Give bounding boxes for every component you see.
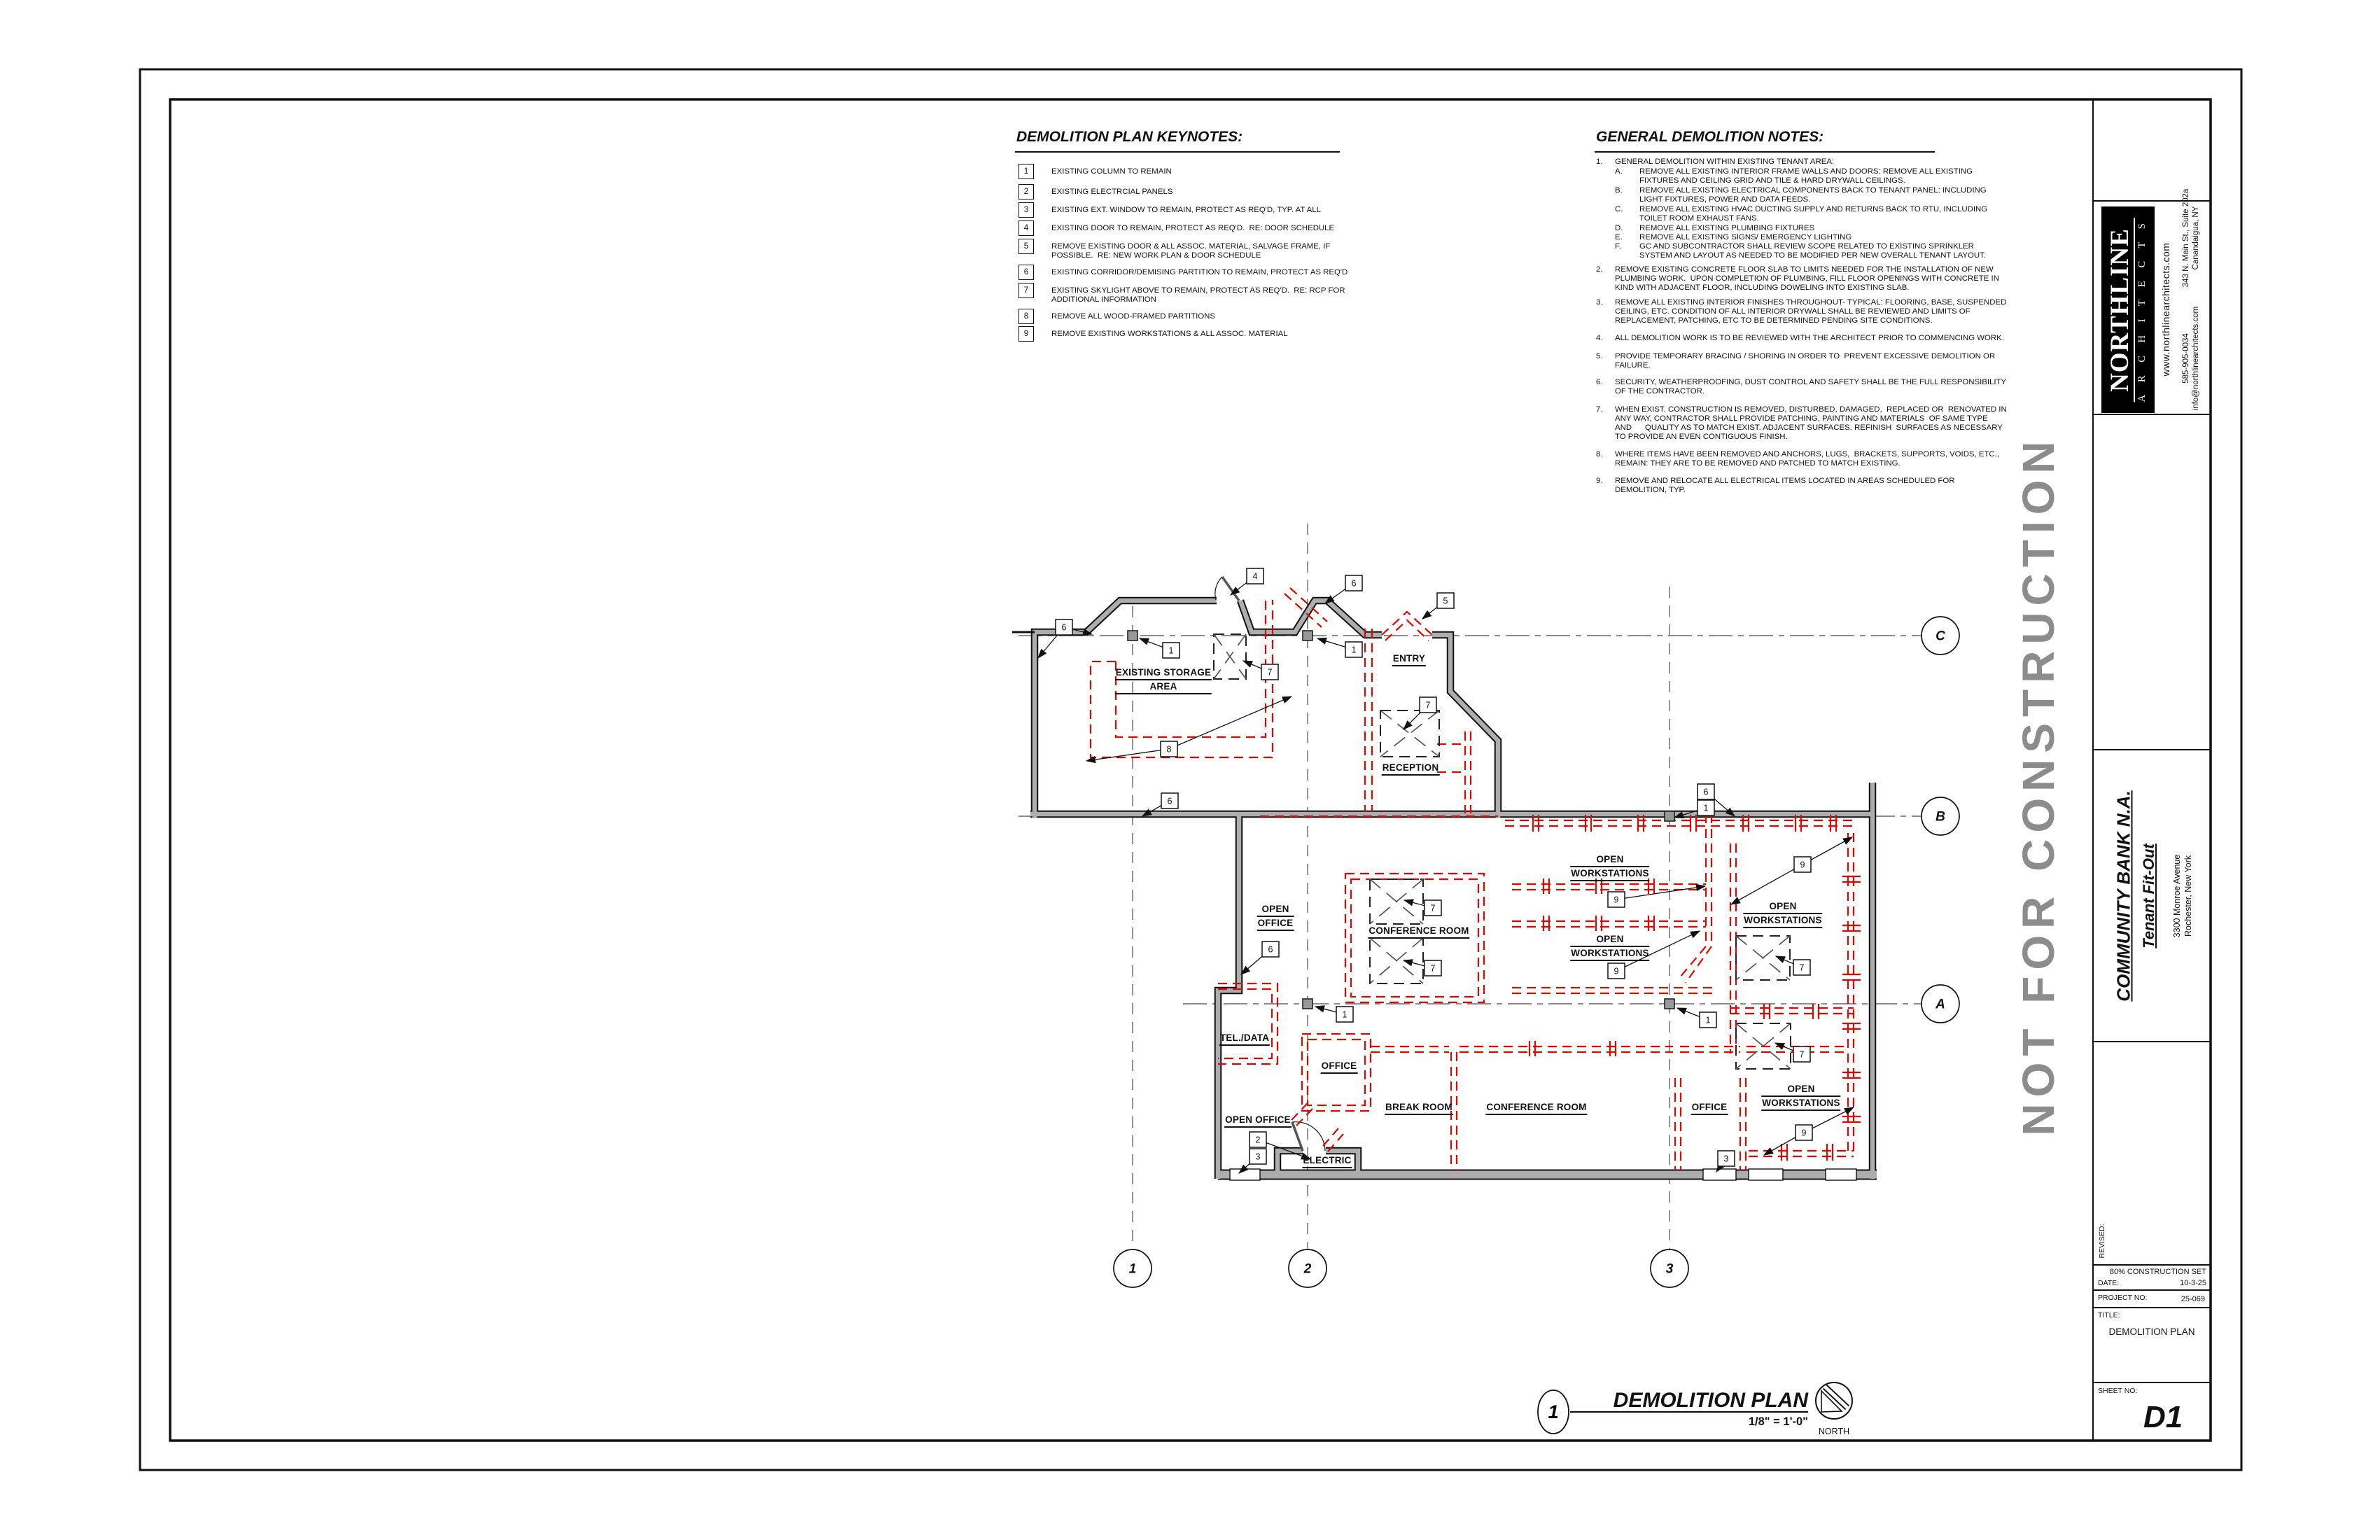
general-note-line: GENERAL DEMOLITION WITHIN EXISTING TENAN… (1615, 157, 1834, 166)
general-note-line: 5. (1596, 352, 1603, 360)
general-note-line: FAILURE. (1615, 361, 1651, 370)
keynotes-header: DEMOLITION PLAN KEYNOTES: (1016, 129, 1242, 146)
room-label-text: ENTRY (1392, 652, 1426, 666)
north-label: NORTH (1819, 1427, 1849, 1436)
keynote-number: 8 (1018, 309, 1034, 324)
general-note-line: 7. (1596, 405, 1603, 414)
keynote-number: 3 (1018, 202, 1034, 218)
room-label-text: CONFERENCE ROOM (1485, 1101, 1587, 1115)
general-note-line: REMOVE ALL EXISTING ELECTRICAL COMPONENT… (1639, 186, 1987, 195)
room-label-text: WORKSTATIONS (1743, 914, 1822, 928)
sheet-no-label: SHEET NO: (2098, 1387, 2137, 1395)
project-address-line1: 3300 Monroe Avenue (2171, 855, 2183, 938)
sheet-title: DEMOLITION PLAN (2096, 1326, 2208, 1337)
room-label-text: WORKSTATIONS (1570, 867, 1649, 881)
keynote-tag-number: 6 (1062, 623, 1067, 633)
general-note-line: REPLACEMENT, PATCHING, ETC TO BE DETERMI… (1615, 316, 1933, 325)
general-note-line: REMAIN: THEY ARE TO BE REMOVED AND PATCH… (1615, 459, 1900, 468)
grid-bubble-label: A (1935, 997, 1945, 1012)
keynote-number: 1 (1018, 164, 1034, 179)
room-label-text: TEL./DATA (1219, 1032, 1270, 1046)
room-label: OPEN OFFICE (1224, 1114, 1291, 1128)
general-note-line: REMOVE ALL EXISTING SIGNS/ EMERGENCY LIG… (1639, 233, 1851, 241)
firm-address: 343 N. Main St., Suite 202a Canandaigua,… (2181, 189, 2201, 288)
general-note-line: GC AND SUBCONTRACTOR SHALL REVIEW SCOPE … (1639, 242, 1974, 251)
keynote-tag-number: 9 (1614, 967, 1619, 976)
keynote-tag-number: 6 (1704, 787, 1709, 797)
drawing-sheet: 1 61746157866161779997712339CBA123 DEMOL… (0, 0, 2380, 1540)
firm-name: NORTHLINE (2107, 218, 2135, 402)
room-label: BREAK ROOM (1385, 1101, 1453, 1115)
keynote-text: EXISTING COLUMN TO REMAIN (1051, 167, 1172, 176)
keynote-tag-number: 9 (1802, 1128, 1807, 1138)
north-arrow-icon (1816, 1382, 1852, 1419)
general-note-line: KIND WITH ADJACENT FLOOR, INCLUDING DOWE… (1615, 283, 1909, 292)
keynote-tag-number: 7 (1426, 701, 1431, 710)
general-note-line: REMOVE ALL EXISTING PLUMBING FIXTURES (1639, 224, 1814, 232)
keynote-tag-number: 7 (1431, 964, 1436, 974)
keynote-tag-number: 4 (1253, 572, 1258, 582)
drawing-title: DEMOLITION PLAN (1568, 1389, 1808, 1413)
room-label: OPENWORKSTATIONS (1743, 900, 1822, 928)
keynotes-rule (1015, 151, 1340, 153)
keynote-tag-number: 1 (1343, 1010, 1347, 1020)
grid-bubble-label: B (1935, 810, 1945, 825)
keynote-tag-number: 1 (1706, 1016, 1711, 1025)
general-note-line: PLUMBING WORK. UPON COMPLETION OF PLUMBI… (1615, 274, 1999, 283)
room-label-text: OFFICE (1321, 1060, 1358, 1074)
general-note-line: LIGHT FIXTURES, POWER AND DATA FEEDS. (1639, 195, 1810, 204)
keynote-number: 7 (1018, 283, 1034, 298)
room-label: ENTRY (1392, 652, 1426, 666)
firm-subtitle: A R C H I T E C T S (2135, 218, 2149, 402)
room-label: OPENOFFICE (1257, 903, 1294, 931)
room-label-text: ELECTRIC (1302, 1154, 1352, 1168)
general-note-line: D. (1615, 224, 1623, 232)
room-label-text: OPEN (1570, 933, 1649, 947)
general-note-line: TOILET ROOM EXHAUST FANS. (1639, 214, 1759, 223)
general-note-line: 1. (1596, 157, 1603, 166)
room-label: CONFERENCE ROOM (1485, 1101, 1587, 1115)
room-label-text: RECEPTION (1382, 762, 1440, 776)
room-label: EXISTING STORAGEAREA (1115, 666, 1212, 694)
keynote-leader (1731, 864, 1802, 904)
firm-contact: 585-905-0034 info@northlinearchitects.co… (2181, 307, 2201, 410)
firm-phone: 585-905-0034 (2181, 307, 2191, 410)
project-address: 3300 Monroe Avenue Rochester, New York (2171, 855, 2194, 938)
general-note-line: ANY WAY, CONTRACTOR SHALL PROVIDE PATCHI… (1615, 414, 1988, 423)
general-note-line: AND QUALITY AS TO MATCH EXIST. ADJACENT … (1615, 423, 2003, 432)
keynote-text: REMOVE EXISTING WORKSTATIONS & ALL ASSOC… (1051, 330, 1288, 338)
firm-address-line2: Canandaigua, NY (2191, 189, 2201, 288)
keynote-tag-number: 6 (1268, 945, 1273, 955)
firm-logo: NORTHLINE A R C H I T E C T S (2101, 206, 2155, 413)
keynote-tag-number: 6 (1168, 797, 1172, 806)
keynote-text: REMOVE EXISTING DOOR & ALL ASSOC. MATERI… (1051, 242, 1330, 251)
keynote-tag-number: 6 (1352, 579, 1357, 589)
keynote-tag-number: 3 (1724, 1154, 1729, 1164)
general-note-line: 8. (1596, 450, 1603, 458)
keynote-tag-number: 7 (1800, 1050, 1805, 1060)
room-label-text: OPEN OFFICE (1224, 1114, 1291, 1128)
keynote-tag-number: 7 (1800, 963, 1805, 973)
room-label: CONFERENCE ROOM (1368, 925, 1469, 939)
room-label-text: WORKSTATIONS (1761, 1097, 1840, 1111)
general-note-line: TO PROVIDE AN EVEN CONTIGUOUS FINISH. (1615, 433, 1788, 441)
firm-address-line1: 343 N. Main St., Suite 202a (2181, 189, 2191, 288)
general-note-line: WHERE ITEMS HAVE BEEN REMOVED AND ANCHOR… (1615, 450, 1999, 458)
title-label: TITLE: (2098, 1311, 2120, 1319)
grid-bubble-label: 2 (1303, 1262, 1312, 1277)
room-label-text: EXISTING STORAGE (1115, 666, 1212, 680)
room-label: ELECTRIC (1302, 1154, 1352, 1168)
general-note-line: 6. (1596, 378, 1603, 386)
room-label-text: OPEN (1570, 853, 1649, 867)
keynote-number: 6 (1018, 265, 1034, 280)
room-label: OPENWORKSTATIONS (1570, 933, 1649, 961)
general-note-line: WHEN EXIST. CONSTRUCTION IS REMOVED, DIS… (1615, 405, 2007, 414)
grid-bubble-label: 3 (1666, 1262, 1674, 1277)
keynote-text: EXISTING SKYLIGHT ABOVE TO REMAIN, PROTE… (1051, 286, 1345, 295)
keynote-tag-number: 1 (1169, 646, 1174, 656)
project-address-line2: Rochester, New York (2183, 855, 2194, 938)
room-label: TEL./DATA (1219, 1032, 1270, 1046)
room-label-text: CONFERENCE ROOM (1368, 925, 1469, 939)
keynote-leader (1616, 886, 1705, 899)
general-note-line: 3. (1596, 298, 1603, 307)
keynote-text: EXISTING DOOR TO REMAIN, PROTECT AS REQ'… (1051, 224, 1334, 232)
general-note-line: A. (1615, 167, 1623, 176)
drawing-number: 1 (1548, 1401, 1558, 1422)
general-note-line: C. (1615, 205, 1623, 213)
general-note-line: REMOVE ALL EXISTING INTERIOR FINISHES TH… (1615, 298, 2006, 307)
keynote-number: 2 (1018, 184, 1034, 199)
general-note-line: 2. (1596, 265, 1603, 274)
keynote-tag-number: 5 (1443, 596, 1448, 606)
room-label-text: OPEN (1257, 903, 1294, 917)
keynote-number: 9 (1018, 326, 1034, 342)
room-label-text: AREA (1115, 680, 1212, 694)
room-label-text: OFFICE (1257, 917, 1294, 931)
set-name: 80% CONSTRUCTION SET (2097, 1268, 2206, 1276)
not-for-construction-watermark: NOT FOR CONSTRUCTION (2012, 435, 2064, 1135)
keynote-text: EXISTING EXT. WINDOW TO REMAIN, PROTECT … (1051, 206, 1321, 214)
sheet-number: D1 (2143, 1400, 2183, 1435)
date-value: 10-3-25 (2097, 1279, 2206, 1287)
keynote-tag-number: 9 (1800, 860, 1805, 870)
keynote-leader (1169, 696, 1291, 749)
keynote-tag-number: 8 (1167, 745, 1172, 755)
room-label-text: OFFICE (1691, 1101, 1728, 1115)
keynote-tag-number: 3 (1256, 1152, 1261, 1162)
general-note-line: F. (1615, 242, 1621, 251)
general-note-line: REMOVE ALL EXISTING INTERIOR FRAME WALLS… (1639, 167, 1973, 176)
revised-label: REVISED: (2098, 1224, 2106, 1258)
keynote-text: EXISTING ELECTRCIAL PANELS (1051, 188, 1172, 196)
general-note-line: OF THE CONTRACTOR. (1615, 387, 1704, 395)
project-name: Tenant Fit-Out (2140, 843, 2158, 948)
general-note-line: REMOVE ALL EXISTING HVAC DUCTING SUPPLY … (1639, 205, 1987, 213)
keynote-tag-number: 9 (1614, 895, 1619, 905)
room-label: OFFICE (1321, 1060, 1358, 1074)
general-note-line: 9. (1596, 477, 1603, 485)
general-note-line: CEILING, ETC. CONDITION OF ALL INTERIOR … (1615, 307, 1970, 316)
client-name: COMMUNITY BANK N.A. (2113, 790, 2135, 1001)
project-no-value: 25-069 (2097, 1295, 2205, 1303)
keynote-number: 5 (1018, 239, 1034, 254)
room-label: OFFICE (1691, 1101, 1728, 1115)
room-label-text: OPEN (1743, 900, 1822, 914)
general-note-line: PROVIDE TEMPORARY BRACING / SHORING IN O… (1615, 352, 1995, 360)
grid-lines (1018, 524, 1921, 1249)
drawing-scale: 1/8" = 1'-0" (1568, 1415, 1808, 1429)
general-notes-rule (1595, 151, 1935, 153)
keynote-text: ADDITIONAL INFORMATION (1051, 295, 1156, 304)
firm-email: info@northlinearchitects.com (2191, 307, 2201, 410)
grid-bubble-label: 1 (1129, 1262, 1137, 1277)
keynote-tag-number: 7 (1431, 904, 1436, 913)
general-note-line: 4. (1596, 334, 1603, 342)
keynote-text: POSSIBLE. RE: NEW WORK PLAN & DOOR SCHED… (1051, 251, 1261, 260)
general-note-line: SECURITY, WEATHERPROOFING, DUST CONTROL … (1615, 378, 2006, 386)
grid-bubble-label: C (1935, 629, 1945, 644)
general-note-line: E. (1615, 233, 1623, 241)
room-label: OPENWORKSTATIONS (1761, 1083, 1840, 1111)
keynote-text: REMOVE ALL WOOD-FRAMED PARTITIONS (1051, 312, 1215, 321)
firm-website: www.northlinearchitects.com (2160, 243, 2171, 377)
room-label-text: WORKSTATIONS (1570, 947, 1649, 961)
room-label-text: BREAK ROOM (1385, 1101, 1453, 1115)
general-note-line: B. (1615, 186, 1623, 195)
firm-logo-text: NORTHLINE A R C H I T E C T S (2107, 218, 2149, 402)
keynote-tag-number: 2 (1256, 1135, 1261, 1145)
general-note-line: DEMOLITION, TYP. (1615, 486, 1686, 494)
room-label-text: OPEN (1761, 1083, 1840, 1097)
room-label: RECEPTION (1382, 762, 1440, 776)
keynote-tag-number: 1 (1352, 645, 1357, 655)
room-label: OPENWORKSTATIONS (1570, 853, 1649, 881)
keynote-tag-number: 1 (1704, 804, 1709, 813)
general-note-line: FIXTURES AND CEILING GRID AND TILE & HAR… (1639, 176, 1905, 185)
keynote-number: 4 (1018, 220, 1034, 236)
general-note-line: SYSTEM AND LAYOUT AS NEEDED TO BE MODIFI… (1639, 251, 1986, 260)
general-notes-header: GENERAL DEMOLITION NOTES: (1596, 129, 1823, 146)
keynote-tag-number: 7 (1268, 668, 1273, 678)
general-note-line: ALL DEMOLITION WORK IS TO BE REVIEWED WI… (1615, 334, 2004, 342)
keynote-text: EXISTING CORRIDOR/DEMISING PARTITION TO … (1051, 268, 1347, 276)
general-note-line: REMOVE AND RELOCATE ALL ELECTRICAL ITEMS… (1615, 477, 1954, 485)
general-note-line: REMOVE EXISTING CONCRETE FLOOR SLAB TO L… (1615, 265, 1994, 274)
keynote-leader (1086, 749, 1169, 761)
